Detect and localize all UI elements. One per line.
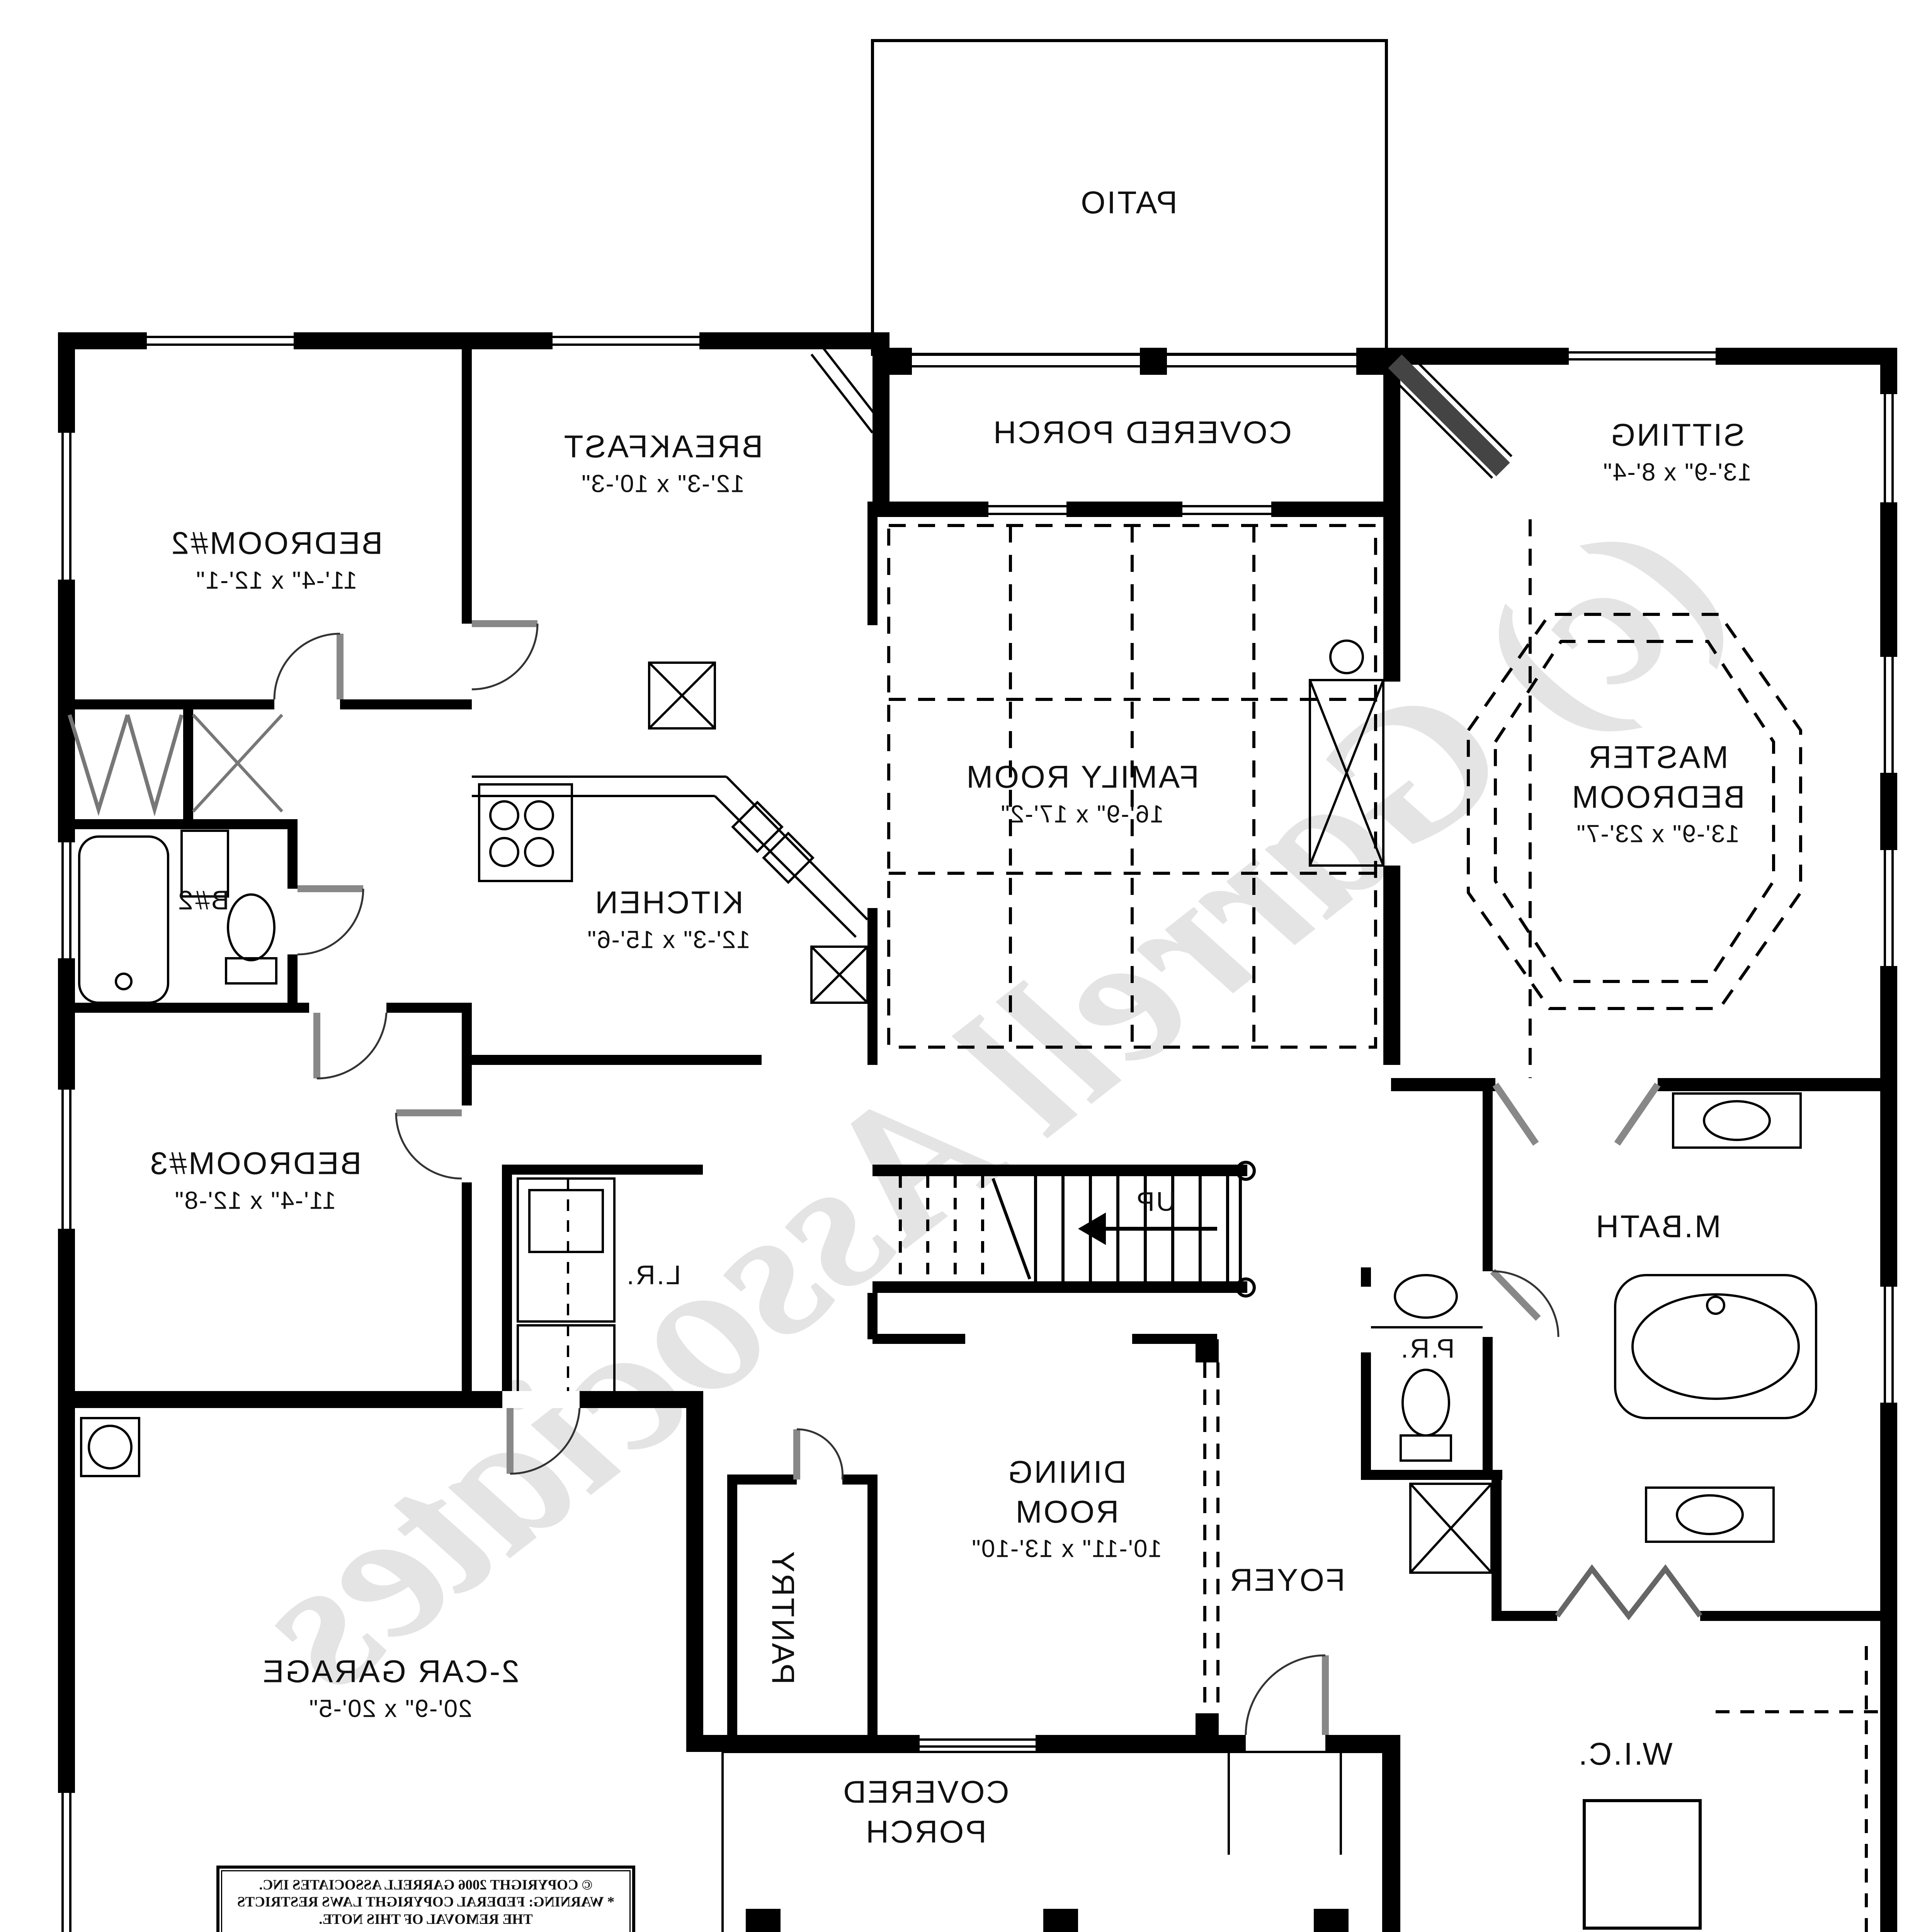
copyright-note-box: © COPYRIGHT 2006 GARRELL ASSOCIATES INC.…	[216, 1866, 635, 1932]
stairs	[900, 1162, 1254, 1296]
master-bath-fixtures	[1410, 1094, 1816, 1573]
room-label-bath2: B#2	[177, 883, 230, 917]
porch-posts-bottom	[746, 1909, 1349, 1932]
room-label-master-bedroom: MASTER BEDROOM 13'-9" x 23'-7"	[1570, 738, 1745, 850]
room-label-patio: PATIO	[1079, 183, 1177, 223]
room-label-bedroom2: BEDROOM#2 11'-4" x 12'-1"	[170, 524, 383, 597]
room-label-dining: DINING ROOM 10'-11" x 13'-10"	[971, 1452, 1162, 1565]
water-heater	[81, 1418, 139, 1476]
room-label-laundry: L.R.	[625, 1258, 681, 1292]
room-label-wic: W.I.C.	[1577, 1735, 1672, 1774]
room-label-family-room: FAMILY ROOM 16'-9" x 17'-2"	[965, 758, 1199, 831]
room-label-bedroom3: BEDROOM#3 11'-4" x 12'-8"	[149, 1144, 362, 1217]
floor-plan-linework	[0, 0, 1932, 1932]
powder-room-fixtures	[1371, 1275, 1483, 1461]
room-label-covered-porch-top: COVERED PORCH	[992, 413, 1292, 453]
room-label-garage: 2-CAR GARAGE 20'-9" x 20'-5"	[261, 1652, 519, 1725]
room-label-covered-porch-bottom: COVERED PORCH	[842, 1773, 1009, 1852]
room-label-breakfast: BREAKFAST 12'-3" x 10'-3"	[562, 427, 763, 500]
stairs-up-label: UP	[1135, 1185, 1175, 1219]
covered-porch-bottom-outline	[723, 1752, 1383, 1932]
room-label-foyer: FOYER	[1228, 1561, 1345, 1600]
room-label-powder-room: P.R.	[1399, 1332, 1454, 1366]
dining-foyer-dashed-divider	[1205, 1362, 1218, 1713]
wic-dashed-shelves	[1716, 1646, 1880, 1932]
floor-plan: (c) Garrell Associates	[0, 0, 1932, 1932]
wic-island	[1584, 1801, 1700, 1928]
room-label-pantry: PANTRY	[763, 1549, 803, 1684]
room-label-sitting: SITTING 13'-9" x 8'-4"	[1602, 416, 1752, 489]
room-label-master-bath: M.BATH	[1594, 1207, 1721, 1247]
copyright-note-text: © COPYRIGHT 2006 GARRELL ASSOCIATES INC.…	[221, 1870, 631, 1932]
room-label-kitchen: KITCHEN 12'-3" x 15'-6"	[587, 883, 750, 956]
porch-posts-top	[885, 348, 1383, 375]
laundry-fixtures	[518, 1179, 614, 1397]
